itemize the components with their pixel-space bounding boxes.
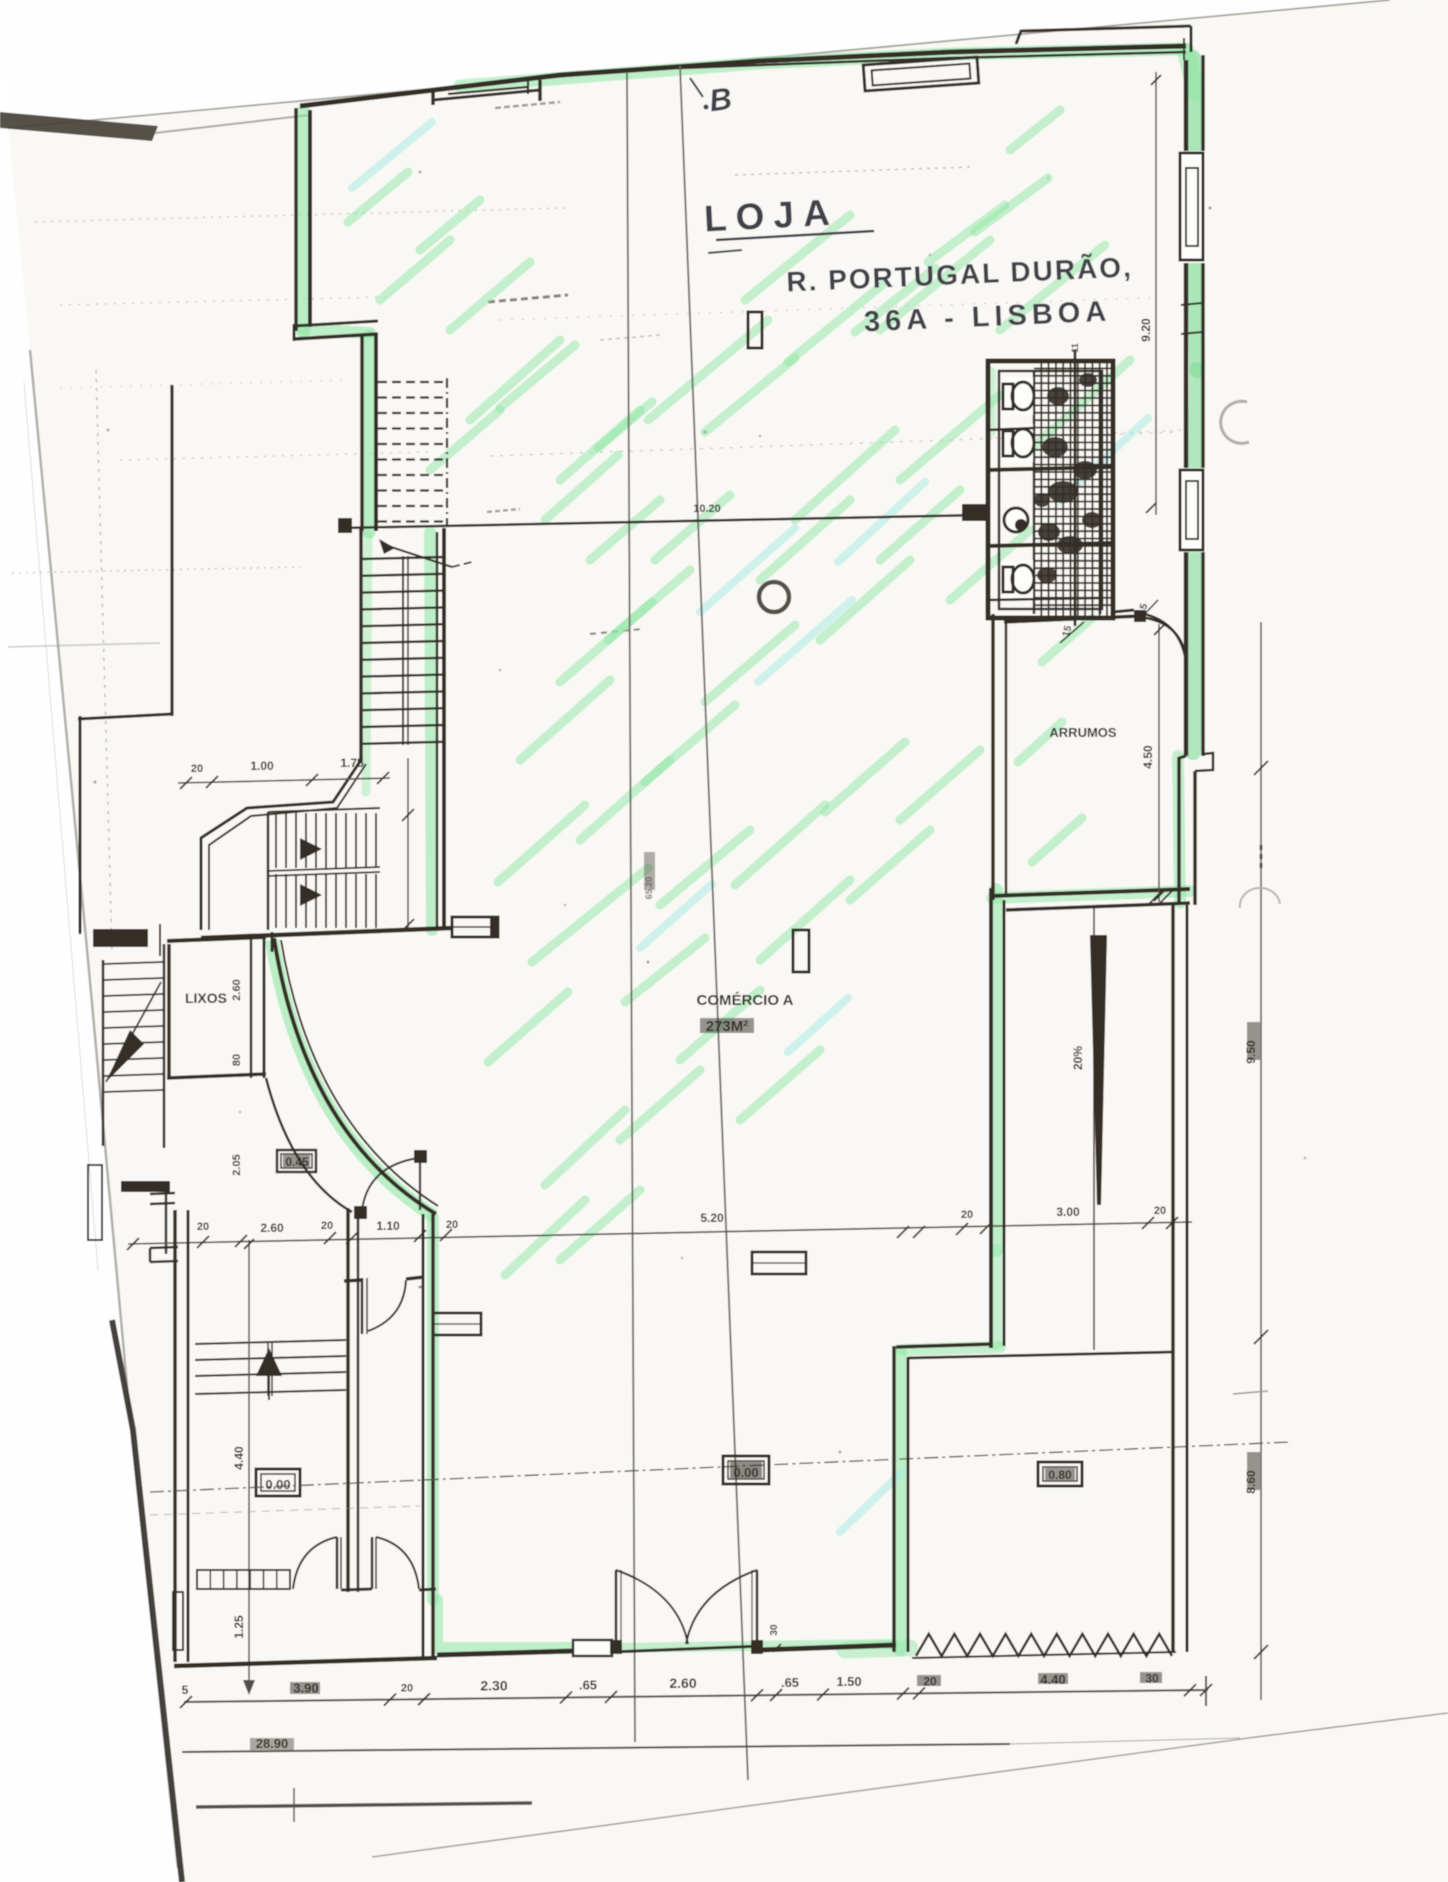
svg-text:1.75: 1.75 bbox=[340, 756, 364, 770]
svg-text:30: 30 bbox=[769, 1624, 780, 1636]
svg-text:80: 80 bbox=[231, 1054, 243, 1066]
svg-text:20: 20 bbox=[197, 1221, 209, 1233]
svg-text:0.00: 0.00 bbox=[265, 1477, 290, 1492]
svg-text:20: 20 bbox=[321, 1220, 333, 1232]
svg-text:LOJA: LOJA bbox=[703, 192, 840, 240]
svg-text:2.05: 2.05 bbox=[231, 1154, 243, 1175]
svg-text:4.40: 4.40 bbox=[232, 1446, 246, 1470]
svg-text:20: 20 bbox=[961, 1209, 973, 1221]
svg-text:1.50: 1.50 bbox=[836, 1674, 861, 1689]
svg-text:1.10: 1.10 bbox=[376, 1219, 400, 1233]
svg-text:65.20: 65.20 bbox=[644, 877, 654, 900]
svg-text:COMÉRCIO A: COMÉRCIO A bbox=[697, 992, 794, 1009]
svg-text:2.60: 2.60 bbox=[669, 1675, 696, 1691]
svg-text:ARRUMOS: ARRUMOS bbox=[1049, 725, 1116, 740]
svg-text:11: 11 bbox=[1070, 343, 1080, 353]
svg-text:1.00: 1.00 bbox=[250, 759, 274, 773]
svg-text:9.20: 9.20 bbox=[1139, 318, 1153, 342]
svg-text:5: 5 bbox=[182, 1683, 189, 1697]
svg-text:20: 20 bbox=[191, 763, 203, 775]
svg-text:20: 20 bbox=[401, 1682, 413, 1694]
svg-text:.65: .65 bbox=[579, 1677, 597, 1692]
svg-text:3.00: 3.00 bbox=[1056, 1205, 1080, 1219]
svg-text:LIXOS: LIXOS bbox=[185, 990, 227, 1006]
svg-text:4.50: 4.50 bbox=[1141, 745, 1155, 769]
svg-text:1.25: 1.25 bbox=[232, 1615, 246, 1639]
svg-text:20: 20 bbox=[1154, 1205, 1166, 1217]
svg-text:5.20: 5.20 bbox=[700, 1211, 724, 1225]
svg-text:2.60: 2.60 bbox=[231, 979, 243, 1000]
svg-text:10.20: 10.20 bbox=[693, 503, 721, 515]
svg-text:20: 20 bbox=[446, 1219, 458, 1231]
svg-text:.65: .65 bbox=[781, 1675, 799, 1690]
svg-text:2.60: 2.60 bbox=[260, 1221, 284, 1235]
svg-text:20%: 20% bbox=[1071, 1046, 1085, 1070]
svg-text:2.30: 2.30 bbox=[480, 1677, 507, 1693]
